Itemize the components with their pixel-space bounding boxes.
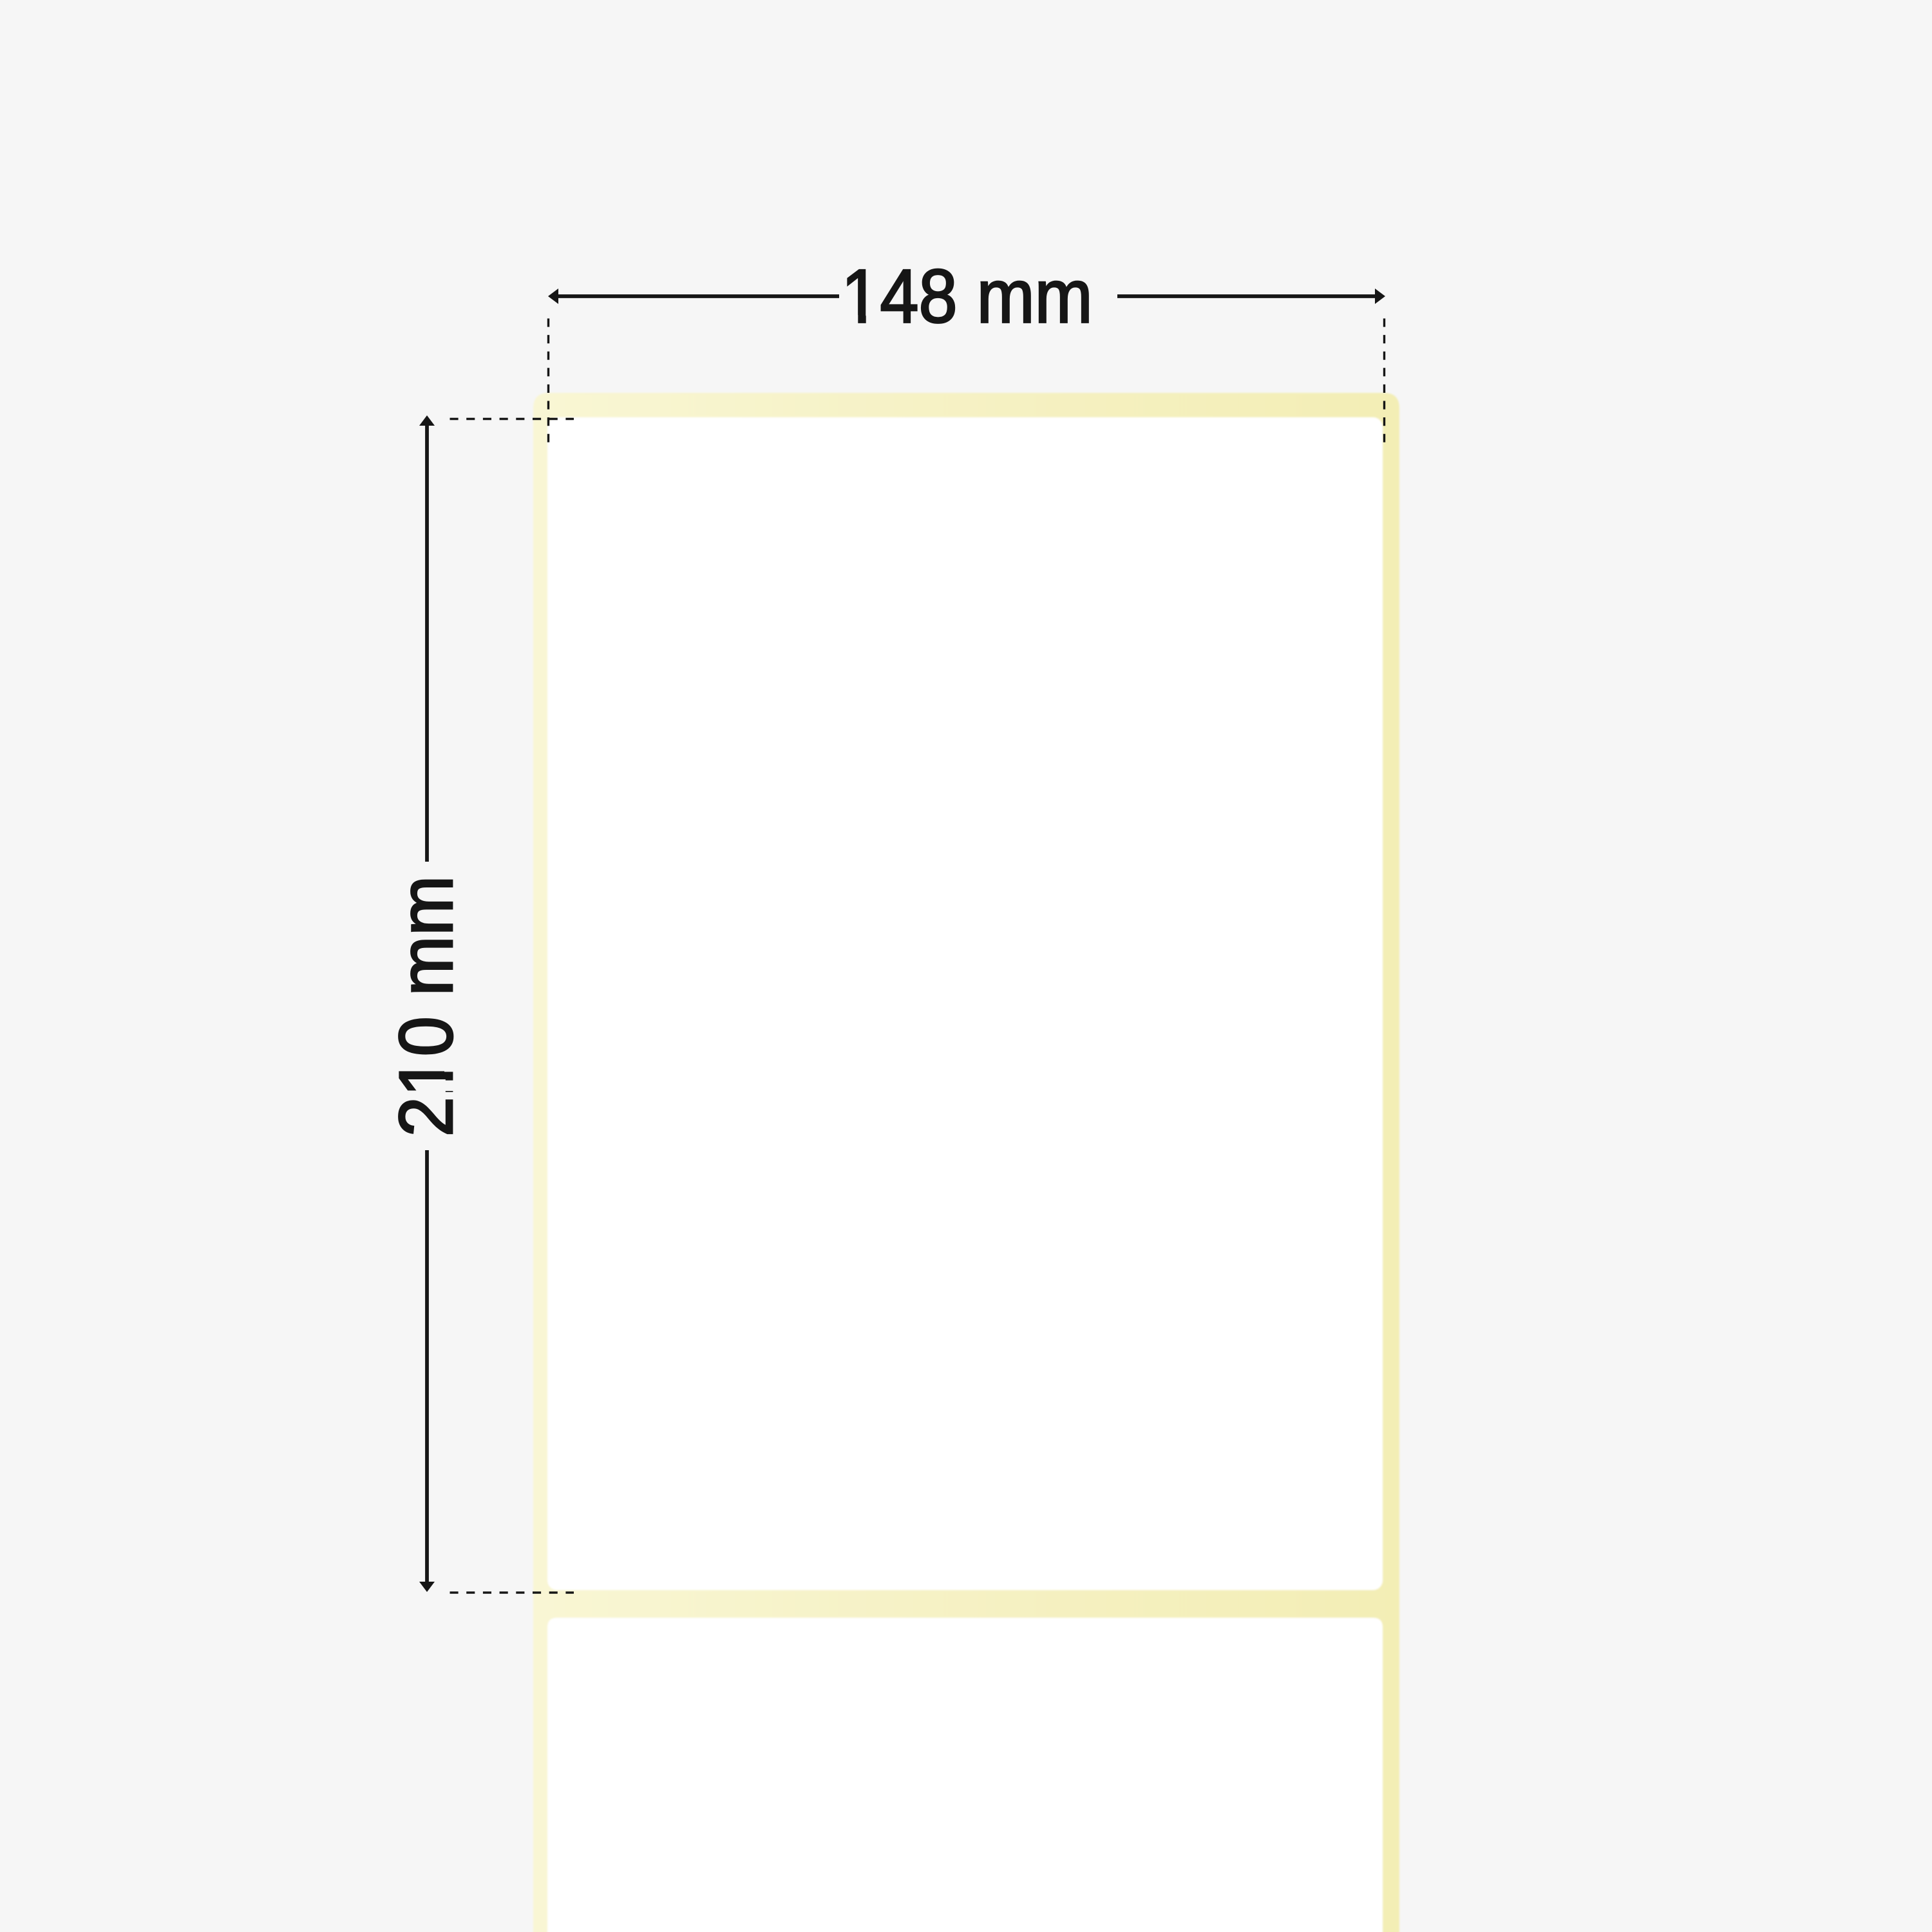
svg-text:148 mm: 148 mm [841, 254, 1092, 338]
svg-text:210 mm: 210 mm [384, 876, 469, 1137]
